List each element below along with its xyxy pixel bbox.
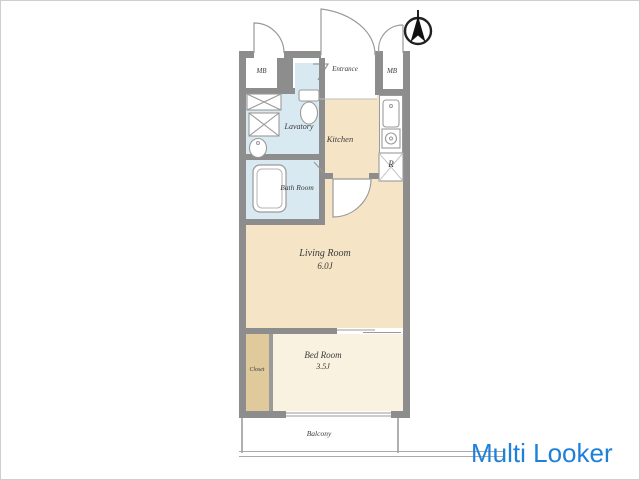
window-lines: [286, 413, 391, 416]
stove-icon: [382, 129, 400, 148]
living-room-label: Living Room: [283, 248, 367, 259]
mb-right-label: MB: [379, 68, 405, 76]
floorplan-image: MB MB Entrance Lavatory Kitchen Bath Roo…: [0, 0, 640, 480]
wash-basin-icon: [250, 139, 267, 158]
kitchen-sink-icon: [383, 100, 399, 127]
door-arc-mb-left: [254, 23, 284, 53]
compass-north-icon: [405, 10, 431, 44]
living-room-size: 6.0J: [283, 262, 367, 272]
sliding-door-lines: [337, 330, 401, 333]
entrance-label: Entrance: [319, 66, 371, 74]
watermark: Multi Looker: [471, 438, 637, 470]
mb-left-label: MB: [246, 68, 277, 76]
kitchen-label: Kitchen: [315, 135, 365, 144]
lavatory-label: Lavatory: [271, 123, 327, 132]
balcony-label: Balcony: [279, 430, 359, 438]
refrigerator-label: R: [379, 160, 403, 170]
closet-label: Closet: [244, 366, 269, 372]
toilet-icon: [299, 90, 319, 124]
door-arc-mb-right: [379, 25, 403, 53]
bathroom-label: Bath Room: [267, 184, 327, 192]
bath-door-mark: [314, 162, 324, 173]
bedroom-size: 3.5J: [281, 363, 365, 372]
door-arc-kitchen-living: [333, 179, 371, 217]
door-arc-entrance: [321, 9, 375, 55]
bedroom-label: Bed Room: [281, 351, 365, 361]
